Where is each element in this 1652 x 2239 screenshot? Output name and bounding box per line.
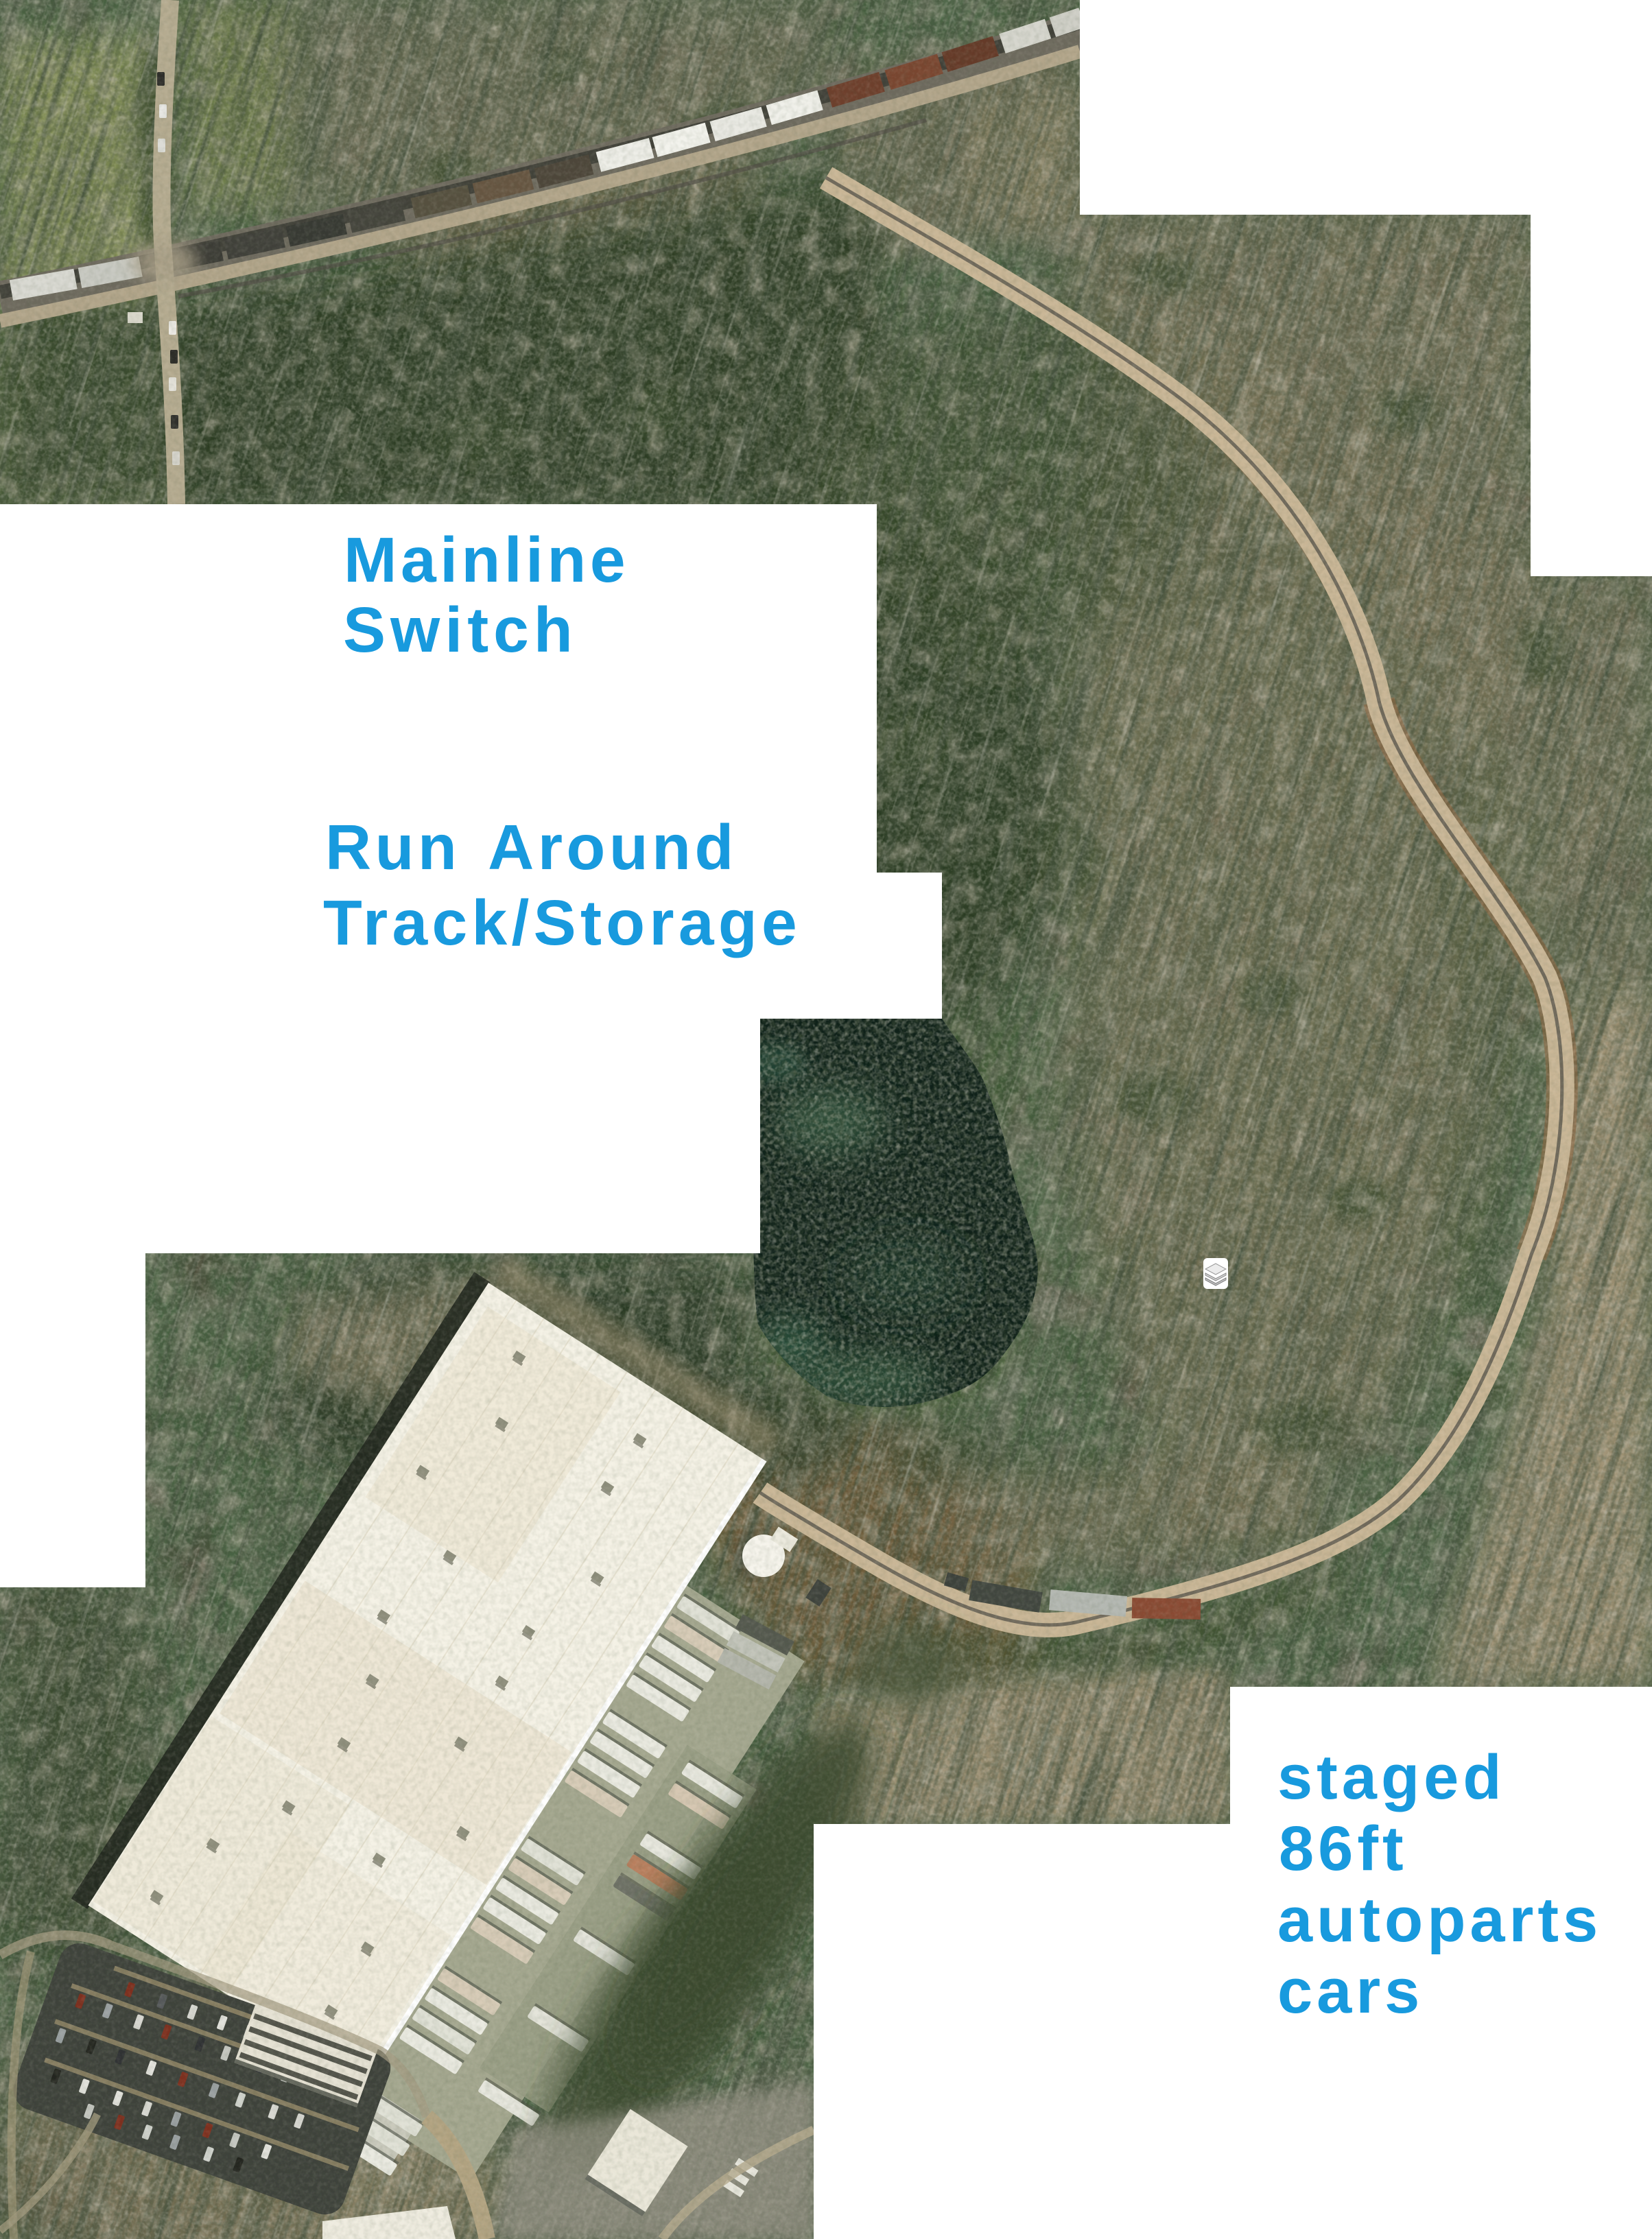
svg-text:Run Around: Run Around — [325, 812, 737, 883]
svg-text:autoparts: autoparts — [1277, 1885, 1602, 1955]
svg-text:86ft: 86ft — [1279, 1814, 1408, 1884]
svg-text:Switch: Switch — [343, 594, 578, 665]
svg-text:staged: staged — [1277, 1742, 1506, 1812]
svg-text:Track/Storage: Track/Storage — [323, 887, 801, 958]
svg-text:Mainline: Mainline — [344, 524, 629, 595]
svg-text:cars: cars — [1277, 1956, 1424, 2026]
